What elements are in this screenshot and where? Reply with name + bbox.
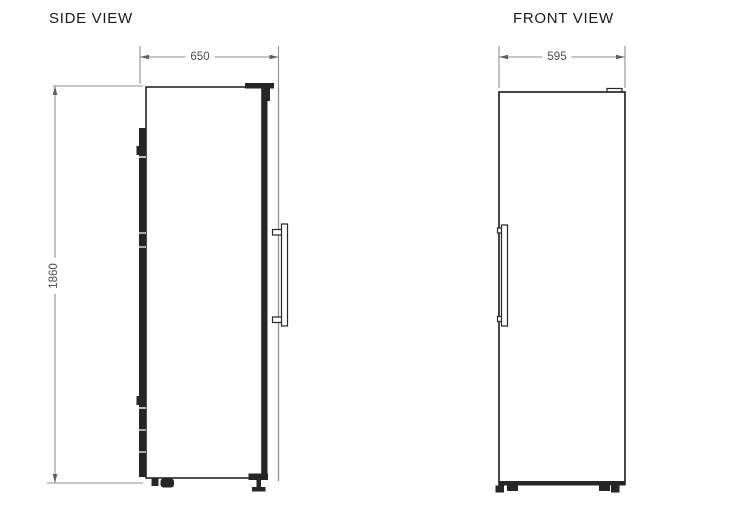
back-panel-bracket (137, 396, 140, 405)
front-view-title: FRONT VIEW (513, 10, 614, 27)
dimension-arrow (270, 55, 279, 60)
dimension-arrow (53, 474, 58, 483)
foot (611, 486, 620, 493)
foot (507, 486, 518, 492)
foot (599, 486, 610, 492)
side-view-drawing (47, 46, 288, 492)
handle-bar (282, 224, 288, 326)
rear-wheel (161, 479, 175, 488)
side-width-dimension-value: 650 (185, 50, 214, 64)
side-view-title: SIDE VIEW (49, 10, 133, 27)
back-panel-strip (139, 128, 146, 477)
hinge-cap (245, 83, 274, 89)
handle-bracket (273, 230, 283, 236)
side-door-handle (273, 224, 288, 326)
handle-bracket (273, 317, 283, 323)
side-cabinet-outline (146, 87, 262, 478)
side-height-dimension-value: 1860 (47, 258, 61, 294)
technical-drawing (0, 0, 729, 509)
dimension-arrow (140, 55, 149, 60)
side-back-panel (137, 128, 147, 477)
handle-bar (502, 225, 508, 326)
front-feet (496, 486, 620, 493)
dimension-arrow (53, 86, 58, 95)
dimension-arrow (499, 55, 508, 60)
foot (496, 486, 505, 493)
side-door-edge (262, 87, 268, 480)
front-cabinet-outline (499, 92, 625, 484)
back-panel-bracket (137, 146, 140, 155)
drawing-canvas: SIDE VIEW FRONT VIEW 650 1860 595 (0, 0, 729, 509)
front-foot-base (252, 487, 266, 492)
side-height-dimension (47, 86, 143, 483)
dimension-arrow (616, 55, 625, 60)
front-base-plinth (499, 481, 626, 486)
front-foot-stem (257, 480, 262, 488)
rear-wheel-bracket (152, 479, 159, 487)
front-foot-bracket (249, 474, 269, 481)
hinge-pin (262, 89, 270, 102)
front-view-drawing (496, 46, 626, 493)
front-width-dimension-value: 595 (542, 50, 571, 64)
